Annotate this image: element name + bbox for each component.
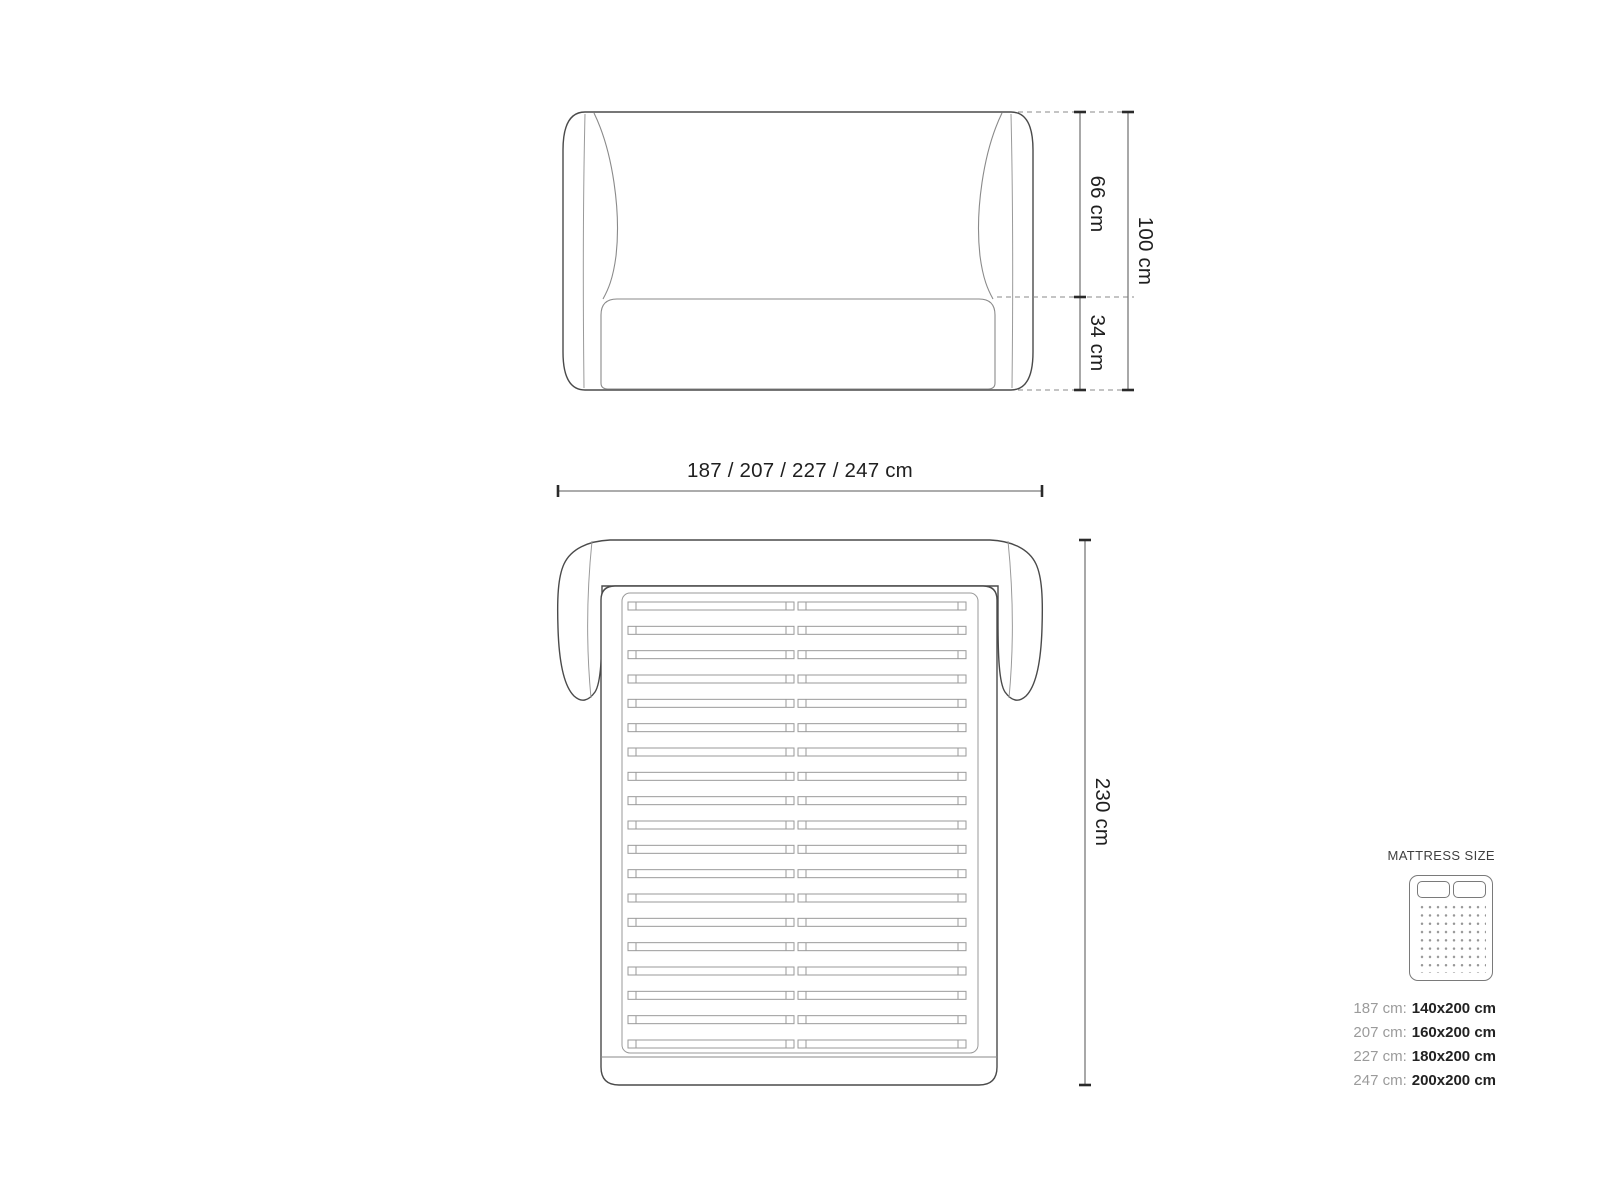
legend-mattress-size: 180x200 cm	[1412, 1048, 1496, 1065]
width-dimension: 187 / 207 / 227 / 247 cm	[558, 459, 1042, 497]
legend-mattress-size: 140x200 cm	[1412, 1000, 1496, 1017]
legend-frame-width: 247 cm:	[1353, 1072, 1406, 1089]
height-total-label: 100 cm	[1134, 217, 1157, 285]
bed-frame-outline	[601, 586, 997, 1085]
pillow-right-icon	[1453, 881, 1486, 898]
legend-size-list: 187 cm:140x200 cm 207 cm:160x200 cm 227 …	[1328, 997, 1496, 1093]
legend-row: 247 cm:200x200 cm	[1328, 1069, 1496, 1093]
bed-dimensions-diagram: 66 cm 34 cm 100 cm 187 / 207 / 227 / 247…	[0, 0, 1600, 1200]
legend-frame-width: 227 cm:	[1353, 1048, 1406, 1065]
mattress-icon	[1409, 875, 1493, 981]
mattress-tufting-dots-icon	[1417, 902, 1486, 973]
depth-dimension: 230 cm	[1079, 540, 1114, 1085]
legend-row: 187 cm:140x200 cm	[1328, 997, 1496, 1021]
bed-front-outline	[563, 112, 1033, 390]
legend-frame-width: 187 cm:	[1353, 1000, 1406, 1017]
depth-label: 230 cm	[1091, 778, 1114, 846]
height-upper-label: 66 cm	[1086, 176, 1109, 233]
legend-mattress-size: 160x200 cm	[1412, 1024, 1496, 1041]
pillow-left-icon	[1417, 881, 1450, 898]
legend-mattress-size: 200x200 cm	[1412, 1072, 1496, 1089]
front-view-drawing: 66 cm 34 cm 100 cm	[563, 112, 1157, 390]
legend-row: 227 cm:180x200 cm	[1328, 1045, 1496, 1069]
height-lower-label: 34 cm	[1086, 315, 1109, 372]
width-label: 187 / 207 / 227 / 247 cm	[687, 459, 913, 482]
mattress-size-legend: MATTRESS SIZE 187 cm:140x200 cm 207 cm:1…	[1328, 844, 1498, 1093]
legend-frame-width: 207 cm:	[1353, 1024, 1406, 1041]
top-view-drawing: 230 cm	[558, 540, 1114, 1085]
legend-title: MATTRESS SIZE	[1328, 847, 1495, 864]
legend-row: 207 cm:160x200 cm	[1328, 1021, 1496, 1045]
